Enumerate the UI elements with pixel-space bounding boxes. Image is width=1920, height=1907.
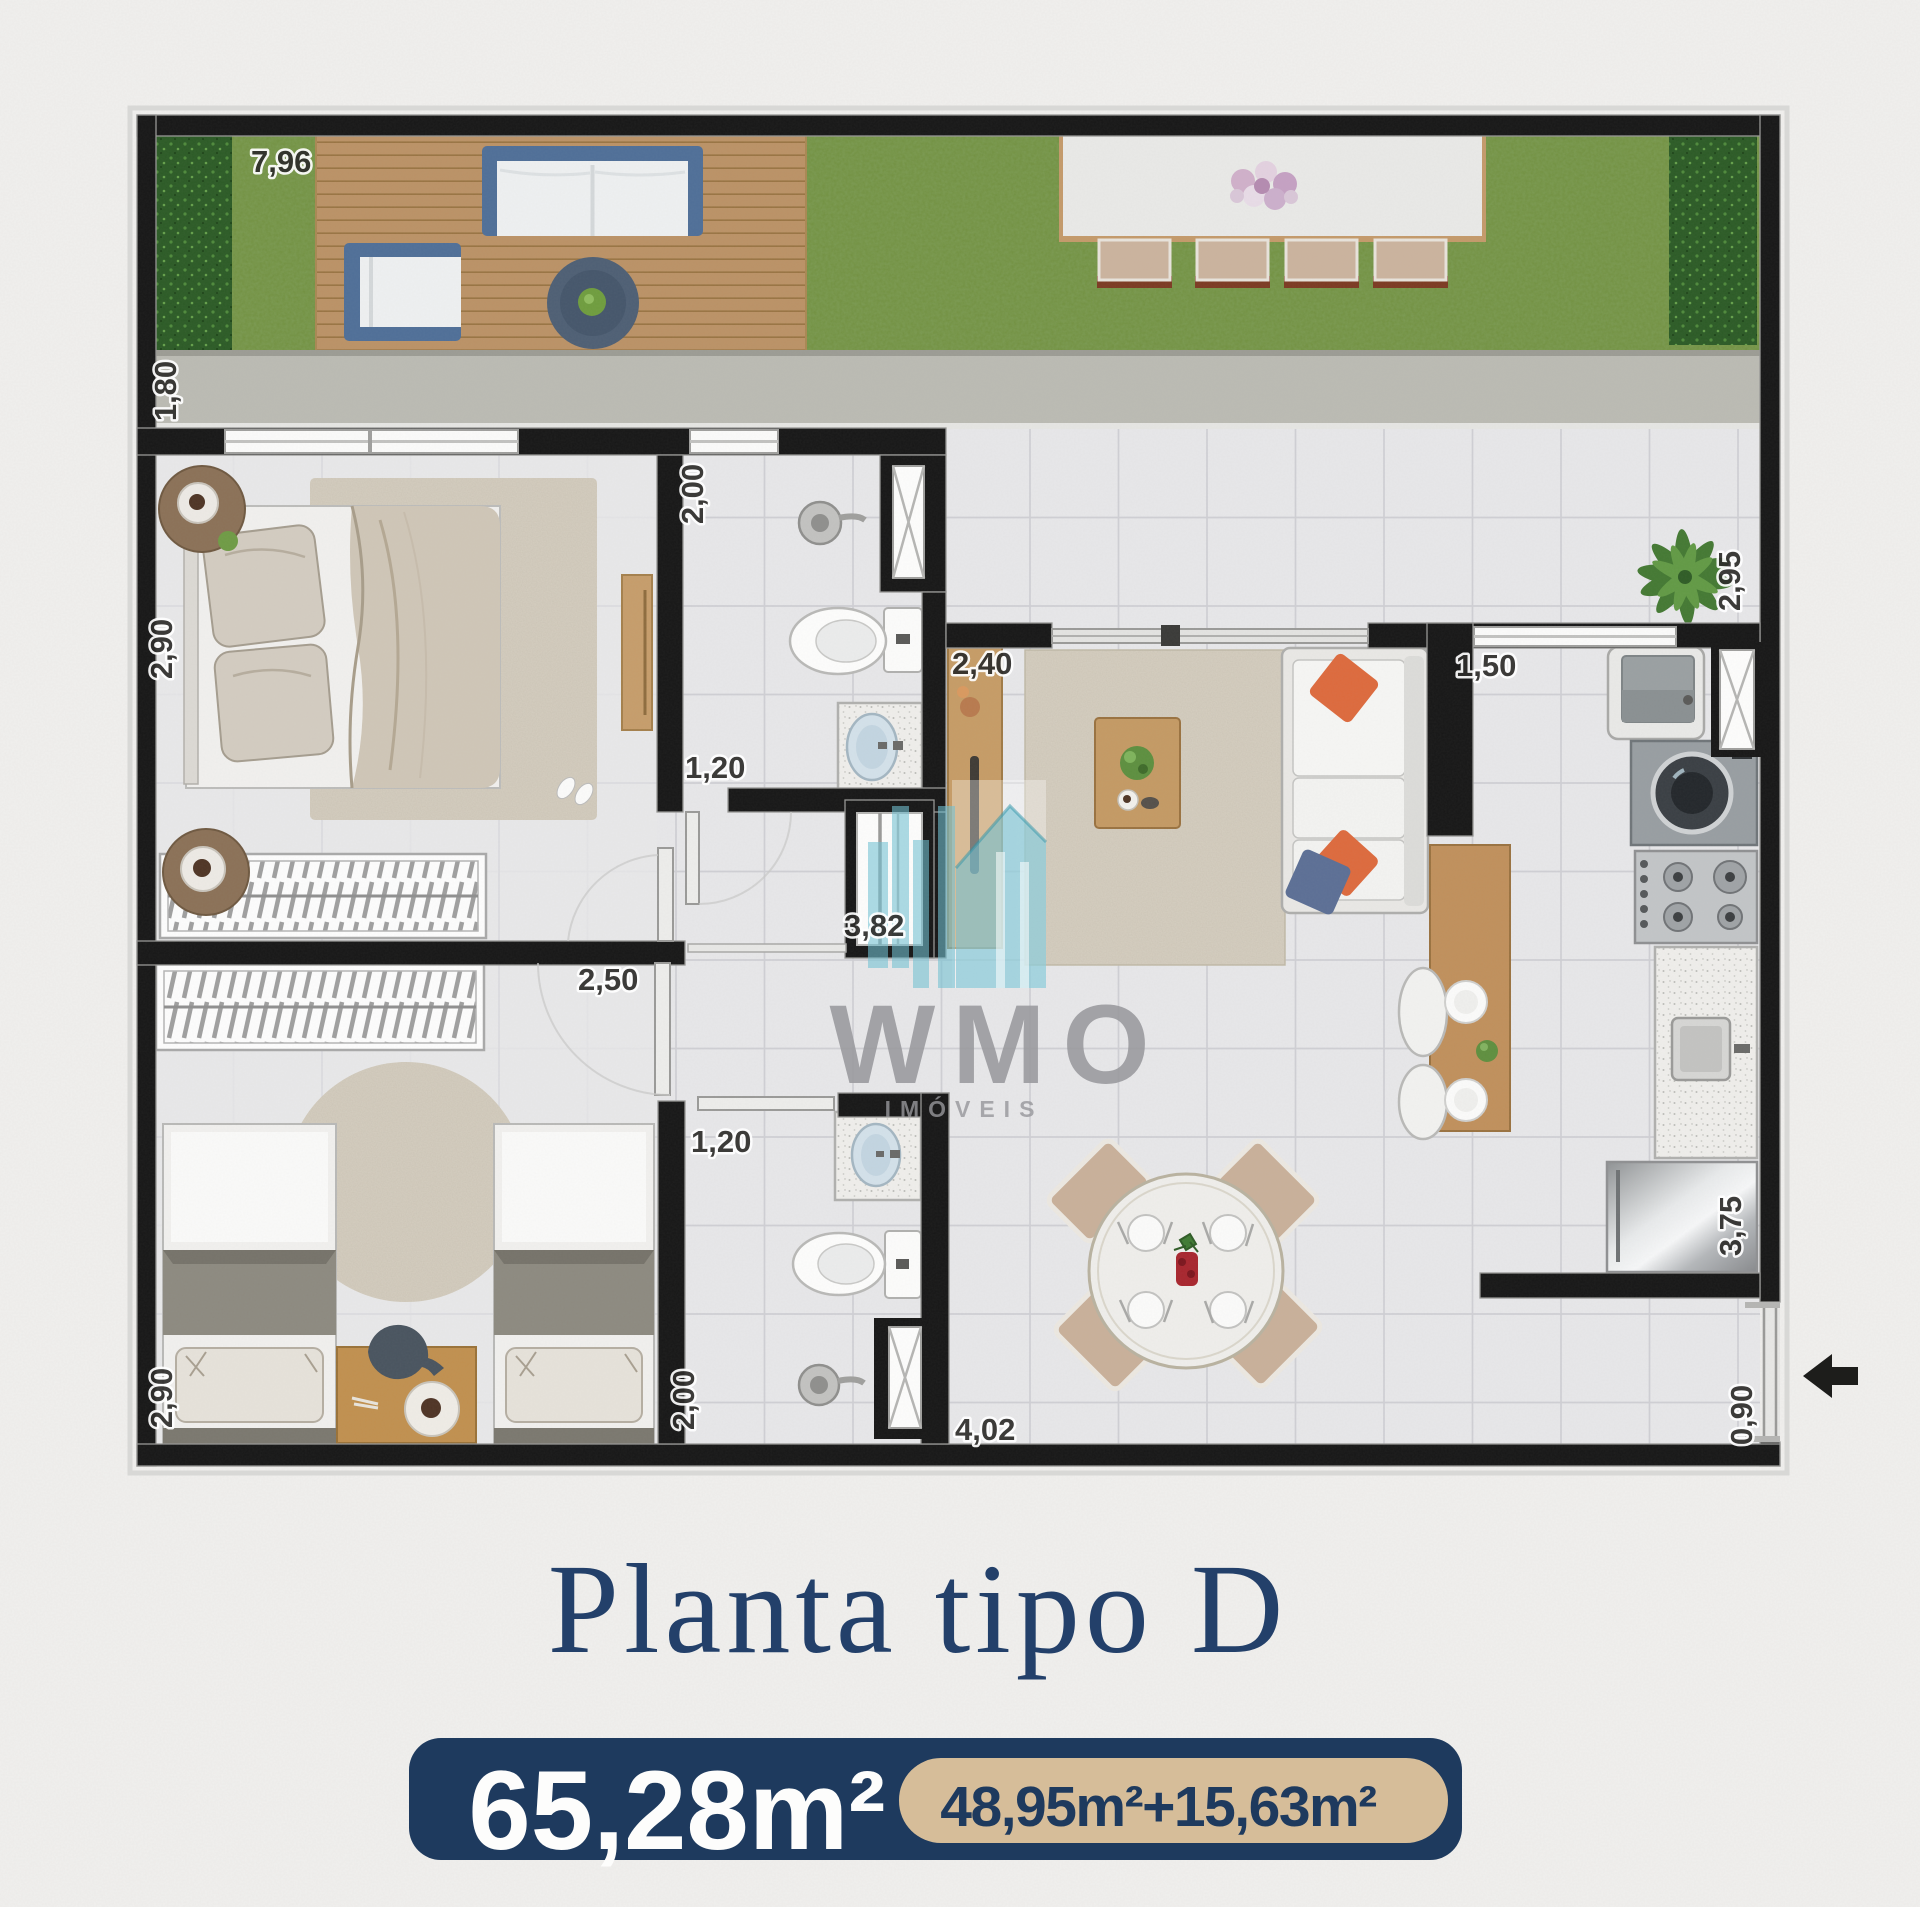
- svg-text:3,82: 3,82: [844, 908, 904, 943]
- svg-text:2,50: 2,50: [578, 962, 638, 997]
- svg-text:7,96: 7,96: [251, 144, 311, 179]
- svg-text:2,00: 2,00: [666, 1370, 701, 1430]
- svg-text:65,28m²: 65,28m²: [468, 1748, 885, 1873]
- svg-text:WMO: WMO: [829, 982, 1166, 1107]
- svg-text:1,80: 1,80: [148, 361, 183, 421]
- svg-text:IMÓVEIS: IMÓVEIS: [885, 1095, 1044, 1122]
- svg-text:4,02: 4,02: [955, 1412, 1015, 1447]
- svg-text:2,40: 2,40: [952, 646, 1012, 681]
- svg-text:48,95m²+15,63m²: 48,95m²+15,63m²: [940, 1775, 1376, 1839]
- svg-text:1,20: 1,20: [691, 1124, 751, 1159]
- svg-text:1,20: 1,20: [685, 750, 745, 785]
- svg-text:2,90: 2,90: [144, 619, 179, 679]
- svg-text:3,75: 3,75: [1713, 1196, 1748, 1256]
- svg-text:1,50: 1,50: [1456, 648, 1516, 683]
- svg-text:Planta tipo D: Planta tipo D: [548, 1538, 1289, 1680]
- svg-text:2,95: 2,95: [1712, 551, 1747, 611]
- svg-text:2,00: 2,00: [675, 464, 710, 524]
- svg-text:2,90: 2,90: [144, 1368, 179, 1428]
- svg-text:0,90: 0,90: [1724, 1385, 1759, 1445]
